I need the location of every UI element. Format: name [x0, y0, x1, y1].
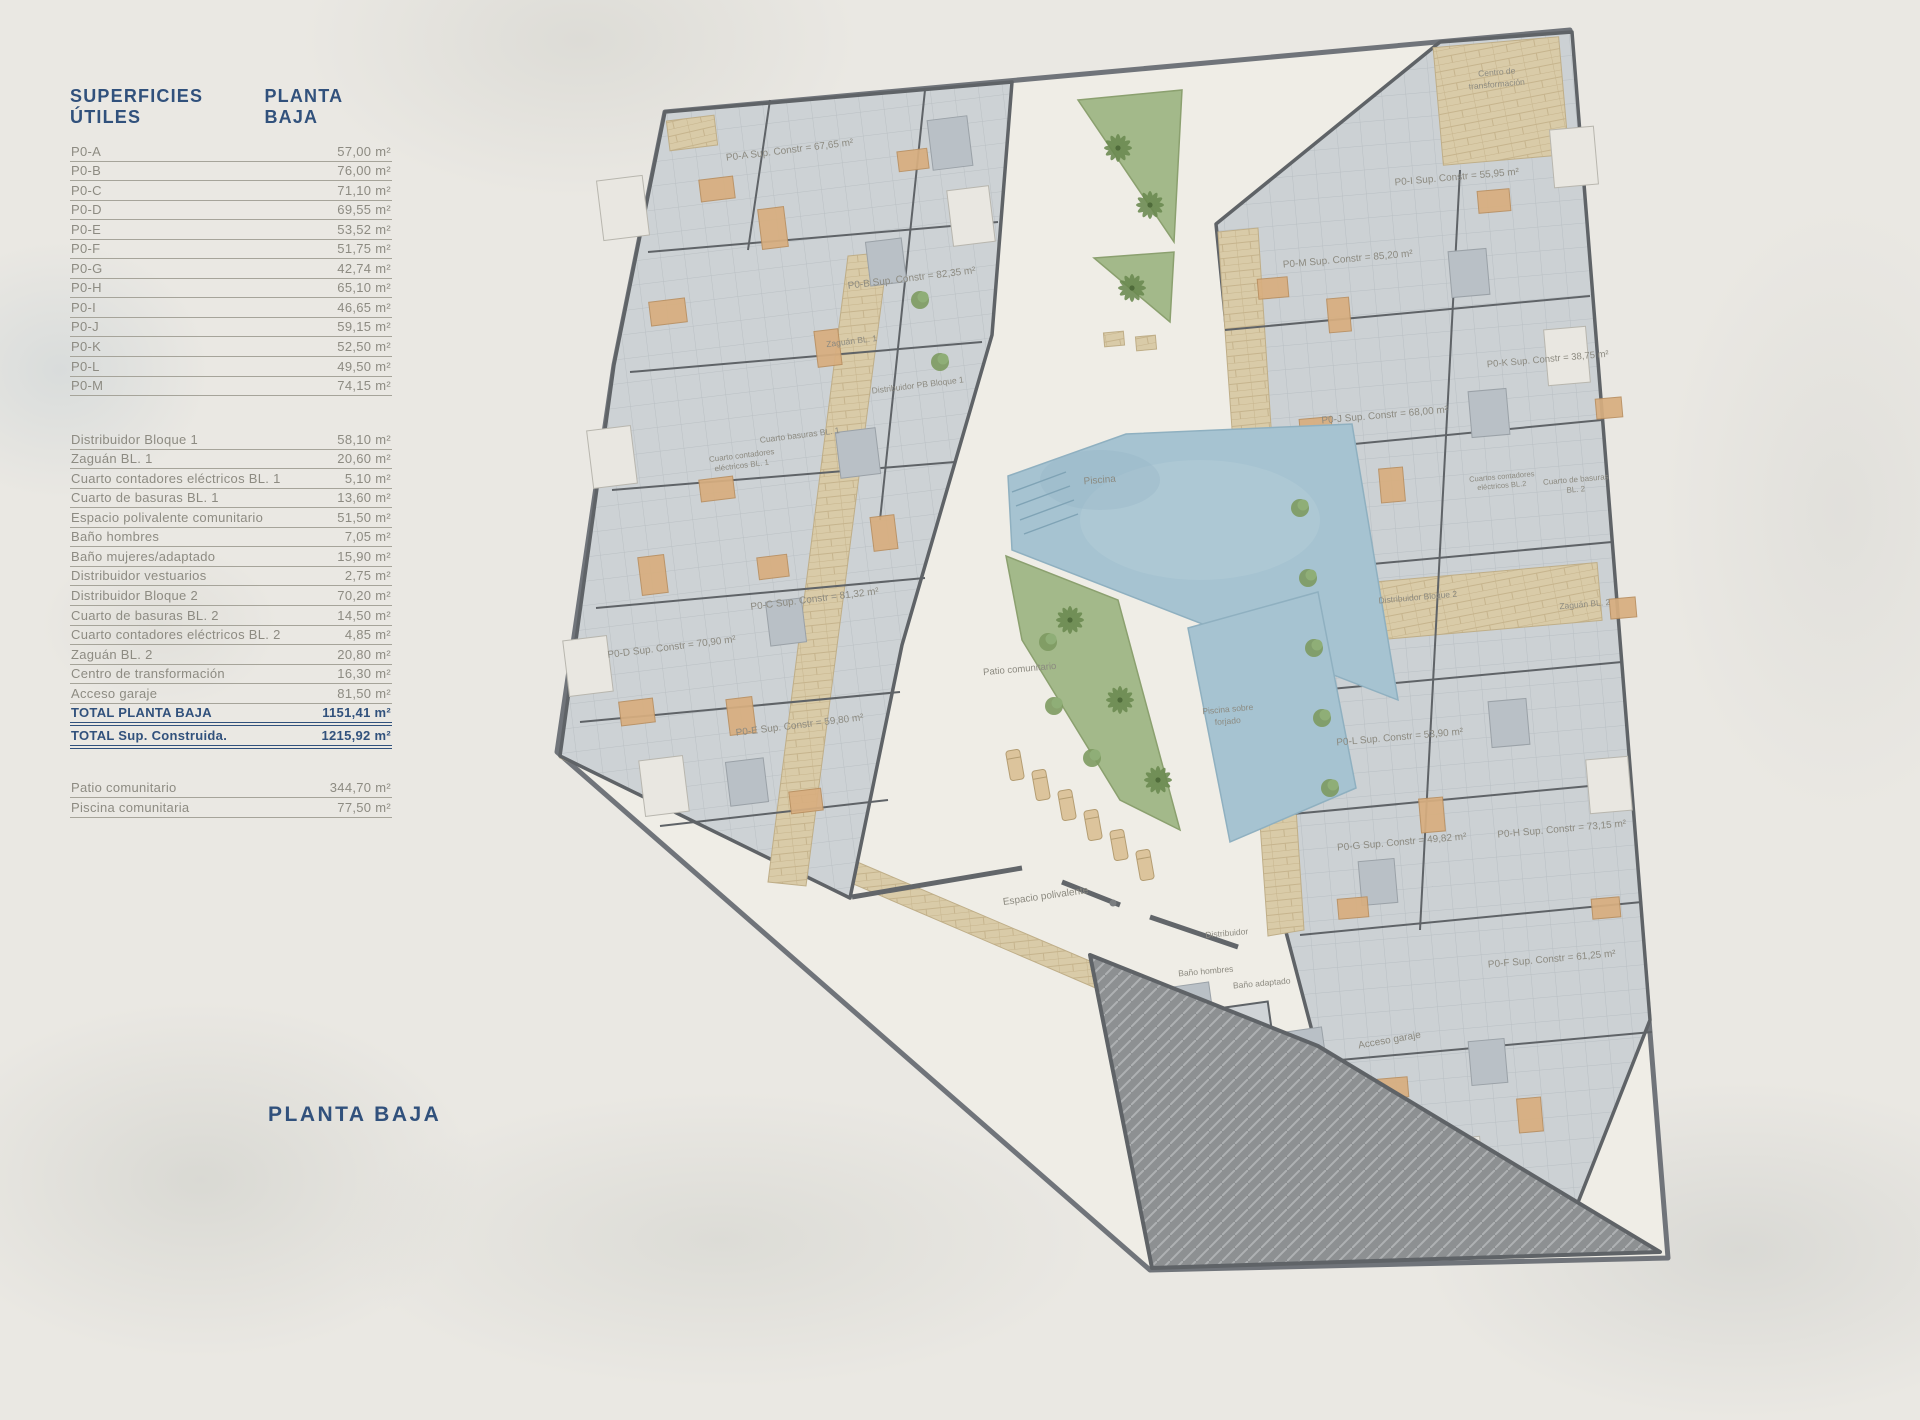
surface-value: 7,05 m² [345, 530, 391, 545]
surface-label: P0-H [71, 281, 102, 296]
surface-value: 344,70 m² [330, 781, 391, 796]
surface-label: P0-F [71, 242, 100, 257]
surface-label: Zaguán BL. 1 [71, 452, 153, 467]
total-row: TOTAL PLANTA BAJA 1151,41 m² [70, 704, 392, 727]
table-row: Espacio polivalente comunitario 51,50 m² [70, 508, 392, 528]
surface-value: 71,10 m² [337, 184, 391, 199]
common-rows: Distribuidor Bloque 1 58,10 m² Zaguán BL… [70, 430, 392, 749]
table-header: SUPERFICIES ÚTILES PLANTA BAJA [70, 86, 392, 128]
table-row: Baño hombres 7,05 m² [70, 528, 392, 548]
surface-value: 16,30 m² [337, 667, 391, 682]
table-row: Zaguán BL. 1 20,60 m² [70, 450, 392, 470]
table-title: SUPERFICIES ÚTILES [70, 86, 264, 128]
table-row: Cuarto contadores eléctricos BL. 2 4,85 … [70, 626, 392, 646]
surface-label: Distribuidor Bloque 1 [71, 433, 198, 448]
surface-label: P0-I [71, 301, 96, 316]
surface-value: 42,74 m² [337, 262, 391, 277]
table-row: P0-D 69,55 m² [70, 201, 392, 221]
common-surface-rows: Distribuidor Bloque 1 58,10 m² Zaguán BL… [70, 430, 392, 704]
surface-value: 57,00 m² [337, 145, 391, 160]
surface-value: 58,10 m² [337, 433, 391, 448]
surface-value: 15,90 m² [337, 550, 391, 565]
total-value: 1215,92 m² [322, 729, 392, 744]
table-row: Baño mujeres/adaptado 15,90 m² [70, 547, 392, 567]
surface-value: 13,60 m² [337, 491, 391, 506]
table-row: Distribuidor vestuarios 2,75 m² [70, 567, 392, 587]
surface-label: Cuarto contadores eléctricos BL. 1 [71, 472, 281, 487]
surface-value: 76,00 m² [337, 164, 391, 179]
table-row: Acceso garaje 81,50 m² [70, 684, 392, 704]
surface-value: 20,60 m² [337, 452, 391, 467]
surface-value: 81,50 m² [337, 687, 391, 702]
surface-label: Piscina comunitaria [71, 801, 189, 816]
table-row: Cuarto de basuras BL. 1 13,60 m² [70, 489, 392, 509]
surface-label: P0-D [71, 203, 102, 218]
surface-value: 65,10 m² [337, 281, 391, 296]
table-row: P0-B 76,00 m² [70, 162, 392, 182]
table-row: Cuarto contadores eléctricos BL. 1 5,10 … [70, 469, 392, 489]
surface-label: Zaguán BL. 2 [71, 648, 153, 663]
total-row: TOTAL Sup. Construida. 1215,92 m² [70, 726, 392, 749]
surface-value: 4,85 m² [345, 628, 391, 643]
surface-label: P0-K [71, 340, 101, 355]
table-row: Cuarto de basuras BL. 2 14,50 m² [70, 606, 392, 626]
surface-label: Cuarto contadores eléctricos BL. 2 [71, 628, 281, 643]
surface-value: 20,80 m² [337, 648, 391, 663]
surface-value: 70,20 m² [337, 589, 391, 604]
surface-label: Acceso garaje [71, 687, 157, 702]
surface-label: Baño hombres [71, 530, 159, 545]
plan-label: BL. 2 [1566, 484, 1586, 495]
surface-label: Espacio polivalente comunitario [71, 511, 263, 526]
table-floor-title: PLANTA BAJA [264, 86, 392, 128]
table-row: P0-L 49,50 m² [70, 357, 392, 377]
surface-label: Cuarto de basuras BL. 1 [71, 491, 219, 506]
table-row: Centro de transformación 16,30 m² [70, 665, 392, 685]
table-row: P0-K 52,50 m² [70, 337, 392, 357]
surface-label: Baño mujeres/adaptado [71, 550, 215, 565]
total-label: TOTAL Sup. Construida. [71, 729, 227, 744]
table-row: Distribuidor Bloque 2 70,20 m² [70, 586, 392, 606]
table-row: P0-C 71,10 m² [70, 181, 392, 201]
surface-label: P0-L [71, 360, 100, 375]
surface-label: P0-A [71, 145, 101, 160]
table-row: P0-M 74,15 m² [70, 377, 392, 397]
table-row: P0-E 53,52 m² [70, 220, 392, 240]
plan-title: PLANTA BAJA [268, 1103, 441, 1127]
surface-value: 49,50 m² [337, 360, 391, 375]
surfaces-table: SUPERFICIES ÚTILES PLANTA BAJA P0-A 57,0… [70, 86, 392, 818]
table-row: P0-F 51,75 m² [70, 240, 392, 260]
surface-value: 53,52 m² [337, 223, 391, 238]
table-row: P0-G 42,74 m² [70, 259, 392, 279]
surface-value: 77,50 m² [337, 801, 391, 816]
surface-value: 51,50 m² [337, 511, 391, 526]
table-row: Piscina comunitaria 77,50 m² [70, 798, 392, 818]
surface-value: 52,50 m² [337, 340, 391, 355]
surface-value: 51,75 m² [337, 242, 391, 257]
table-row: P0-H 65,10 m² [70, 279, 392, 299]
table-row: P0-A 57,00 m² [70, 142, 392, 162]
surface-value: 59,15 m² [337, 320, 391, 335]
total-value: 1151,41 m² [322, 706, 391, 721]
surface-label: Patio comunitario [71, 781, 177, 796]
surface-label: P0-E [71, 223, 101, 238]
surface-value: 69,55 m² [337, 203, 391, 218]
total-rows: TOTAL PLANTA BAJA 1151,41 m² TOTAL Sup. … [70, 704, 392, 749]
surface-label: Distribuidor vestuarios [71, 569, 207, 584]
surface-value: 74,15 m² [337, 379, 391, 394]
surface-value: 46,65 m² [337, 301, 391, 316]
surface-label: P0-G [71, 262, 103, 277]
total-label: TOTAL PLANTA BAJA [71, 706, 212, 721]
surface-label: P0-J [71, 320, 99, 335]
table-row: P0-I 46,65 m² [70, 298, 392, 318]
surface-label: P0-M [71, 379, 103, 394]
surface-value: 5,10 m² [345, 472, 391, 487]
surface-label: P0-C [71, 184, 102, 199]
table-row: P0-J 59,15 m² [70, 318, 392, 338]
surface-value: 2,75 m² [345, 569, 391, 584]
surface-value: 14,50 m² [337, 609, 391, 624]
surface-label: Cuarto de basuras BL. 2 [71, 609, 219, 624]
table-row: Distribuidor Bloque 1 58,10 m² [70, 430, 392, 450]
surface-label: Centro de transformación [71, 667, 225, 682]
surface-label: P0-B [71, 164, 101, 179]
table-row: Zaguán BL. 2 20,80 m² [70, 645, 392, 665]
surface-label: Distribuidor Bloque 2 [71, 589, 198, 604]
apartment-rows: P0-A 57,00 m² P0-B 76,00 m² P0-C 71,10 m… [70, 142, 392, 396]
table-row: Patio comunitario 344,70 m² [70, 779, 392, 799]
outdoor-rows: Patio comunitario 344,70 m² Piscina comu… [70, 779, 392, 818]
